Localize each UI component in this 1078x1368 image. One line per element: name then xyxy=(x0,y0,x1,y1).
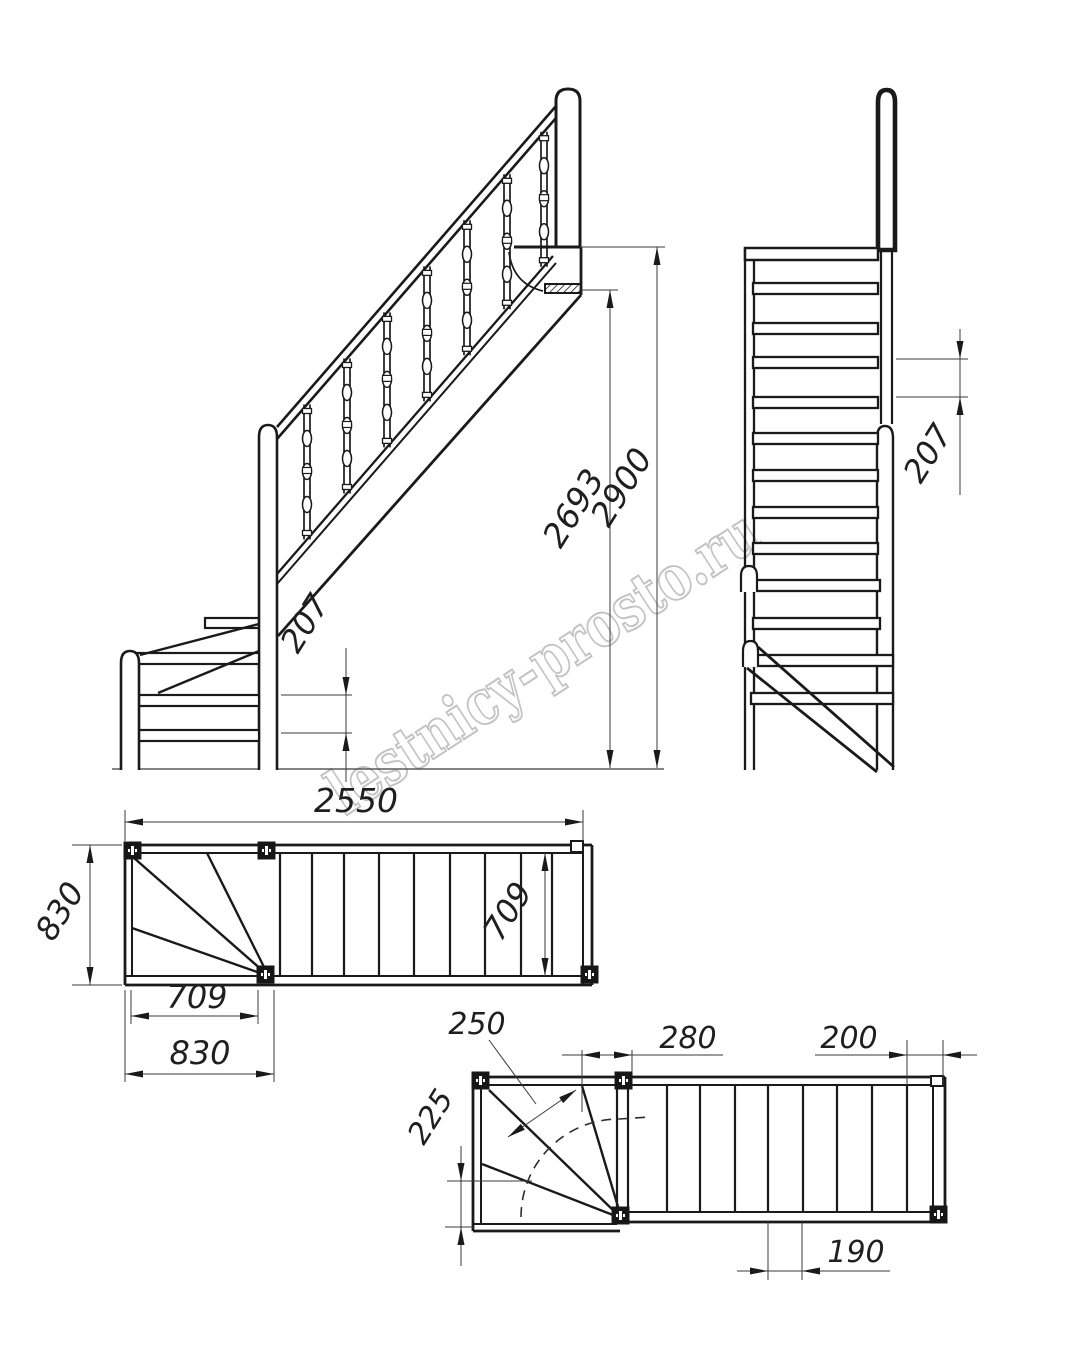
newel-post-marker xyxy=(257,966,274,983)
dim-narrow-end-label: 225 xyxy=(401,1083,461,1150)
dim-side-riser-label: 207 xyxy=(895,417,960,489)
dim-post-offset-label: 280 xyxy=(659,1021,716,1056)
side-landing-band xyxy=(745,248,878,260)
baluster xyxy=(423,266,432,401)
detail-winder-fan xyxy=(482,1086,619,1215)
dim-walkline-going: 250 xyxy=(448,1007,576,1137)
dim-winder-width-left-label: 830 xyxy=(27,875,92,947)
newel-post-marker xyxy=(472,1072,489,1089)
dim-front-riser-label: 207 xyxy=(272,587,337,659)
side-tread xyxy=(753,433,878,444)
dim-winder-width-left: 830 xyxy=(27,845,122,985)
top-tread-hatched xyxy=(545,284,581,293)
newel-post-marker xyxy=(612,1207,629,1224)
starter-tread xyxy=(133,730,259,741)
watermark-text: lestnicy-prosto.ru xyxy=(314,495,773,829)
starter-tread xyxy=(133,695,259,706)
rail-end-notch xyxy=(571,841,583,852)
dim-flight-inner-width: 709 xyxy=(475,853,548,976)
newel-post-marker xyxy=(124,842,141,859)
dim-going-label: 190 xyxy=(827,1235,884,1270)
side-tread xyxy=(753,357,878,368)
top-newel-post xyxy=(556,89,580,247)
dim-going: 190 xyxy=(737,1222,890,1280)
dim-winder-going-label: 709 xyxy=(166,978,227,1016)
baluster xyxy=(463,220,472,355)
plan-detail-dimensions: 250 280 200 225 xyxy=(401,1007,977,1280)
side-tread xyxy=(753,618,880,629)
side-elevation-view xyxy=(741,90,895,772)
starter-stringer xyxy=(140,624,259,655)
staircase-technical-drawing: lestnicy-prosto.ru xyxy=(0,0,1078,1368)
newel-post-marker xyxy=(258,842,275,859)
baluster xyxy=(343,359,352,494)
side-middle-newel xyxy=(877,426,893,770)
side-top-newel xyxy=(878,90,895,250)
side-tread xyxy=(753,397,878,408)
side-tread xyxy=(753,283,878,294)
baluster xyxy=(303,405,312,540)
newel-post-marker xyxy=(581,966,598,983)
side-tread xyxy=(753,580,880,591)
side-newel-cap xyxy=(741,566,757,592)
newel-post-marker xyxy=(930,1206,947,1223)
handrail xyxy=(277,106,556,427)
rail-end-notch xyxy=(931,1076,943,1086)
baluster xyxy=(503,174,512,309)
dim-last-going: 200 xyxy=(815,1021,977,1085)
dim-last-going-label: 200 xyxy=(820,1021,877,1056)
baluster xyxy=(383,312,392,447)
detail-plan-treads xyxy=(667,1085,907,1212)
dim-walkline-going-label: 250 xyxy=(448,1007,505,1042)
side-tread xyxy=(753,543,878,554)
dim-side-riser: 207 xyxy=(895,329,968,495)
middle-newel-post xyxy=(259,425,277,770)
side-tread xyxy=(753,470,878,481)
blueprint-canvas: lestnicy-prosto.ru xyxy=(0,0,1078,1368)
dim-total-run: 2550 xyxy=(125,781,583,841)
side-newel-cap xyxy=(743,641,758,667)
dim-total-run-label: 2550 xyxy=(314,781,398,820)
winder-fan-treads xyxy=(132,853,265,973)
plan-view-winder-detail xyxy=(472,1072,947,1231)
side-tread xyxy=(753,323,878,334)
dim-total-height: 2900 xyxy=(580,247,665,768)
walk-line-dashed xyxy=(521,1117,650,1217)
dim-winder-width-bottom-label: 830 xyxy=(169,1034,230,1072)
bottom-newel-post xyxy=(121,651,139,770)
newel-post-marker xyxy=(615,1072,632,1089)
side-tread xyxy=(753,507,878,518)
